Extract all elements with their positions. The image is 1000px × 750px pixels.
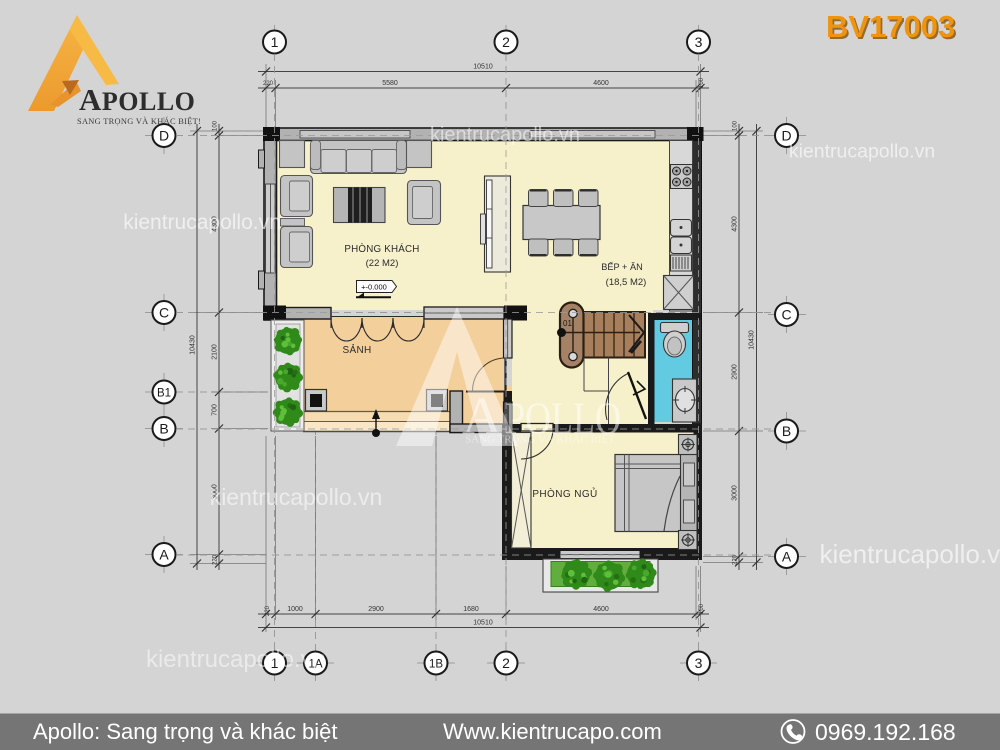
svg-text:2900: 2900 [368,606,384,613]
svg-text:100: 100 [699,77,705,88]
svg-text:4300: 4300 [732,216,739,232]
svg-text:B: B [782,423,791,439]
svg-text:2: 2 [502,655,510,671]
svg-text:C: C [159,305,169,321]
svg-text:4600: 4600 [593,606,609,613]
svg-text:kientrucapollo.vn: kientrucapollo.vn [430,124,580,146]
svg-text:BV17003: BV17003 [826,9,955,44]
svg-text:0969.192.168: 0969.192.168 [815,719,956,745]
svg-text:10510: 10510 [473,64,493,71]
svg-text:(18,5 M2): (18,5 M2) [606,277,647,288]
svg-text:220: 220 [263,81,274,87]
svg-text:100: 100 [699,603,705,614]
svg-text:D: D [159,128,169,144]
svg-text:2: 2 [502,34,510,50]
svg-text:PHÒNG NGỦ: PHÒNG NGỦ [532,487,597,500]
svg-text:3: 3 [695,34,703,50]
svg-text:kientrucapollo.vn: kientrucapollo.vn [210,484,383,510]
svg-text:3: 3 [695,655,703,671]
svg-text:SẢNH: SẢNH [343,343,372,356]
svg-text:01: 01 [563,319,572,328]
svg-text:700: 700 [212,404,219,416]
svg-text:100: 100 [213,120,219,131]
svg-text:220: 220 [265,605,271,616]
svg-text:5580: 5580 [382,80,398,87]
svg-text:kientrucapollo.vn: kientrucapollo.vn [819,539,1000,569]
svg-text:1B: 1B [429,659,443,671]
svg-text:A: A [782,549,792,565]
svg-text:1680: 1680 [463,606,479,613]
svg-text:A: A [159,547,169,563]
svg-text:B: B [159,421,168,437]
svg-text:100: 100 [733,120,739,131]
svg-text:3000: 3000 [732,485,739,501]
svg-text:1000: 1000 [287,606,303,613]
svg-text:BẾP + ĂN: BẾP + ĂN [601,262,642,272]
svg-text:1: 1 [271,34,279,50]
svg-text:10430: 10430 [190,335,197,355]
svg-text:Apollo: Sang trọng và khác biệ: Apollo: Sang trọng và khác biệt [33,719,338,744]
svg-text:2100: 2100 [212,344,219,360]
svg-text:Www.kientrucapo.com: Www.kientrucapo.com [443,719,662,744]
svg-text:PHÒNG KHÁCH: PHÒNG KHÁCH [344,244,419,255]
svg-text:APOLLO: APOLLO [79,82,195,117]
svg-text:C: C [781,307,791,323]
svg-text:4600: 4600 [593,80,609,87]
svg-text:kientrucapollo.vn: kientrucapollo.vn [123,211,281,234]
svg-text:B1: B1 [157,388,171,400]
svg-text:kientrucapollo.vn: kientrucapollo.vn [146,646,326,673]
svg-text:(22 M2): (22 M2) [366,258,399,269]
svg-text:10510: 10510 [473,620,493,627]
svg-text:2900: 2900 [732,364,739,380]
svg-text:10430: 10430 [749,330,756,350]
svg-text:kientrucapollo.vn: kientrucapollo.vn [789,141,935,163]
svg-text:SANG TRỌNG VÀ KHÁC BIỆT: SANG TRỌNG VÀ KHÁC BIỆT [465,434,615,446]
svg-text:SANG TRỌNG VÀ KHÁC BIỆT!: SANG TRỌNG VÀ KHÁC BIỆT! [77,116,201,126]
svg-text:220: 220 [213,554,219,565]
svg-text:220: 220 [733,554,739,565]
svg-text:+-0.000: +-0.000 [361,283,387,292]
